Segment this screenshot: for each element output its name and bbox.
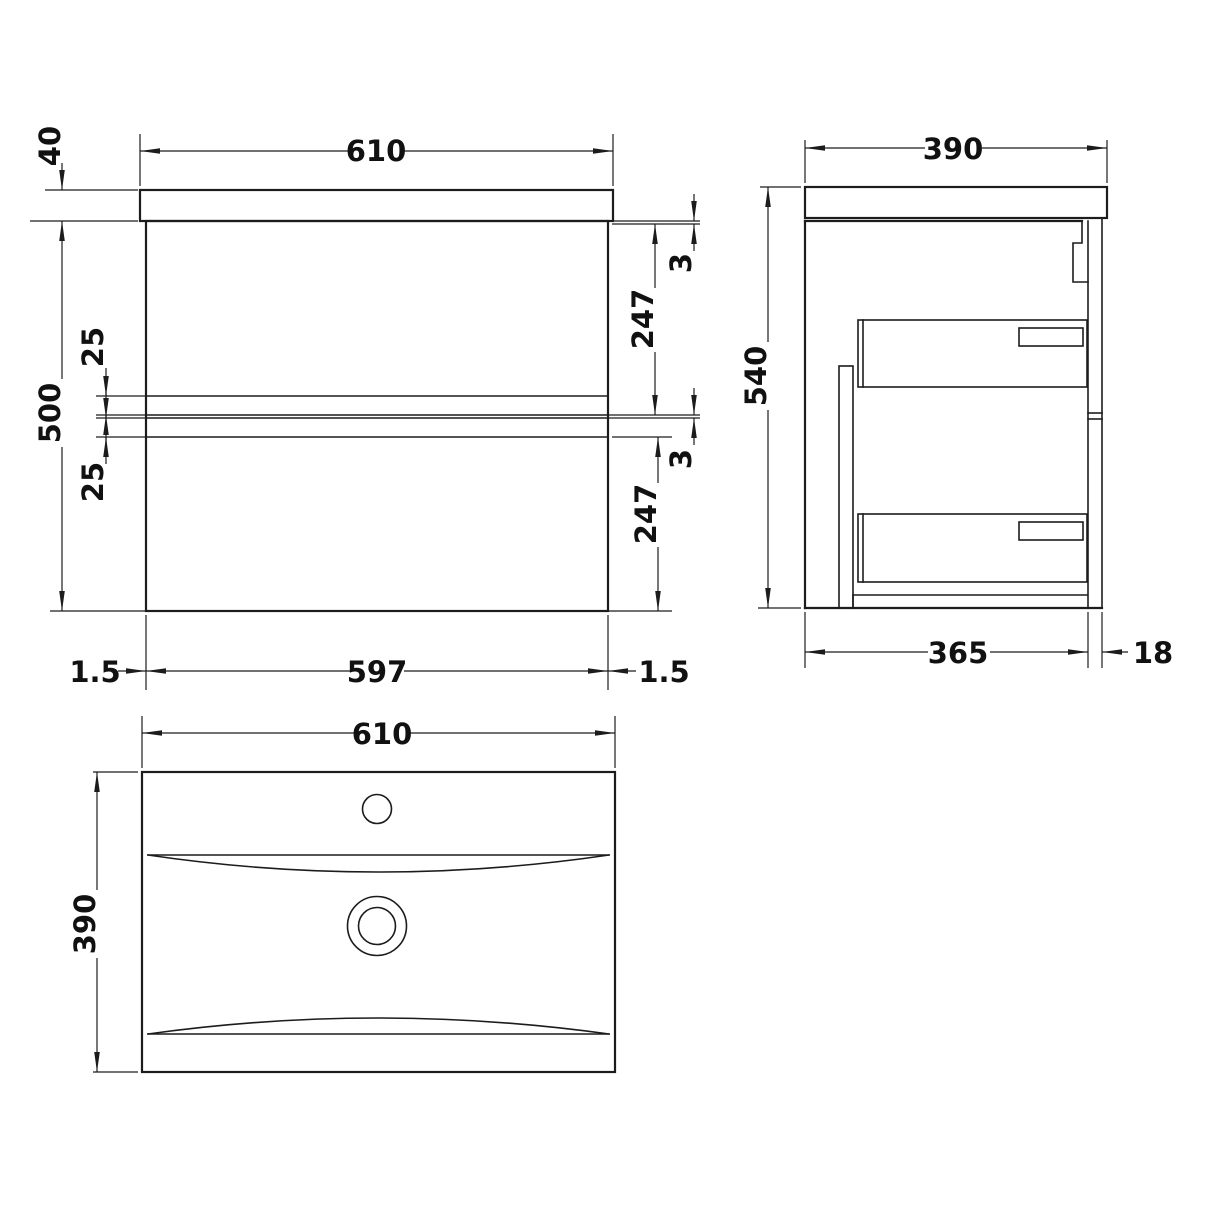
side-front-stile — [839, 366, 853, 608]
side-depth-label: 390 — [923, 132, 984, 166]
plan-lower-edge-curve — [148, 1018, 609, 1034]
side-height-label: 540 — [739, 346, 773, 407]
front-dim-drawer-fronts: 3 247 3 247 — [50, 194, 700, 611]
front-dim-counter: 40 — [30, 126, 138, 221]
plan-width-label: 610 — [352, 717, 413, 751]
front-dim-rail-gaps: 25 25 — [76, 327, 146, 502]
side-dim-depth: 390 — [805, 132, 1107, 183]
drawing-svg: 610 40 500 25 25 — [0, 0, 1214, 1214]
front-view: 610 40 500 25 25 — [30, 126, 700, 690]
front-counter-thickness-label: 40 — [33, 126, 67, 166]
front-drawer-upper-label: 247 — [626, 289, 660, 350]
side-dim-bottom: 365 18 — [805, 612, 1173, 670]
side-wall-bracket — [1073, 221, 1088, 282]
side-drawer-upper-runner — [1019, 328, 1083, 346]
side-countertop — [805, 187, 1107, 218]
side-dim-height: 540 — [739, 187, 801, 608]
front-offset-left-label: 1.5 — [69, 655, 120, 689]
front-rail-gap-upper-label: 25 — [76, 327, 110, 367]
front-dim-width: 610 — [140, 134, 613, 186]
plan-dim-width: 610 — [142, 716, 615, 768]
plan-drain-inner — [359, 908, 396, 945]
front-rail-gap-lower-label: 25 — [76, 462, 110, 502]
plan-view: 610 390 — [68, 716, 615, 1072]
front-drawer-lower-label: 247 — [629, 484, 663, 545]
front-cabinet-body — [146, 221, 608, 611]
front-width-label: 610 — [346, 134, 407, 168]
front-cabinet-width-label: 597 — [347, 655, 408, 689]
side-view: 390 540 365 18 — [739, 132, 1173, 670]
front-offset-right-label: 1.5 — [638, 655, 689, 689]
plan-tap-hole — [363, 795, 392, 824]
side-cabinet-depth-label: 365 — [928, 636, 989, 670]
side-drawer-lower-runner — [1019, 522, 1083, 540]
side-drawer-box-upper — [858, 320, 1087, 387]
plan-drain-outer — [348, 897, 407, 956]
front-mid-reveal-label: 3 — [664, 449, 698, 469]
plan-depth-label: 390 — [68, 894, 102, 955]
plan-dim-depth: 390 — [68, 772, 138, 1072]
vanity-dimension-drawing: 610 40 500 25 25 — [0, 0, 1214, 1214]
front-top-reveal-label: 3 — [664, 253, 698, 273]
side-back-rail-label: 18 — [1133, 636, 1173, 670]
front-cabinet-height-label: 500 — [33, 383, 67, 444]
plan-upper-edge-curve — [148, 855, 609, 872]
front-countertop — [140, 190, 613, 221]
front-dim-cabinet-height: 500 — [33, 221, 67, 611]
side-drawer-box-lower — [858, 514, 1087, 582]
front-dim-bottom: 1.5 597 1.5 — [69, 615, 689, 690]
